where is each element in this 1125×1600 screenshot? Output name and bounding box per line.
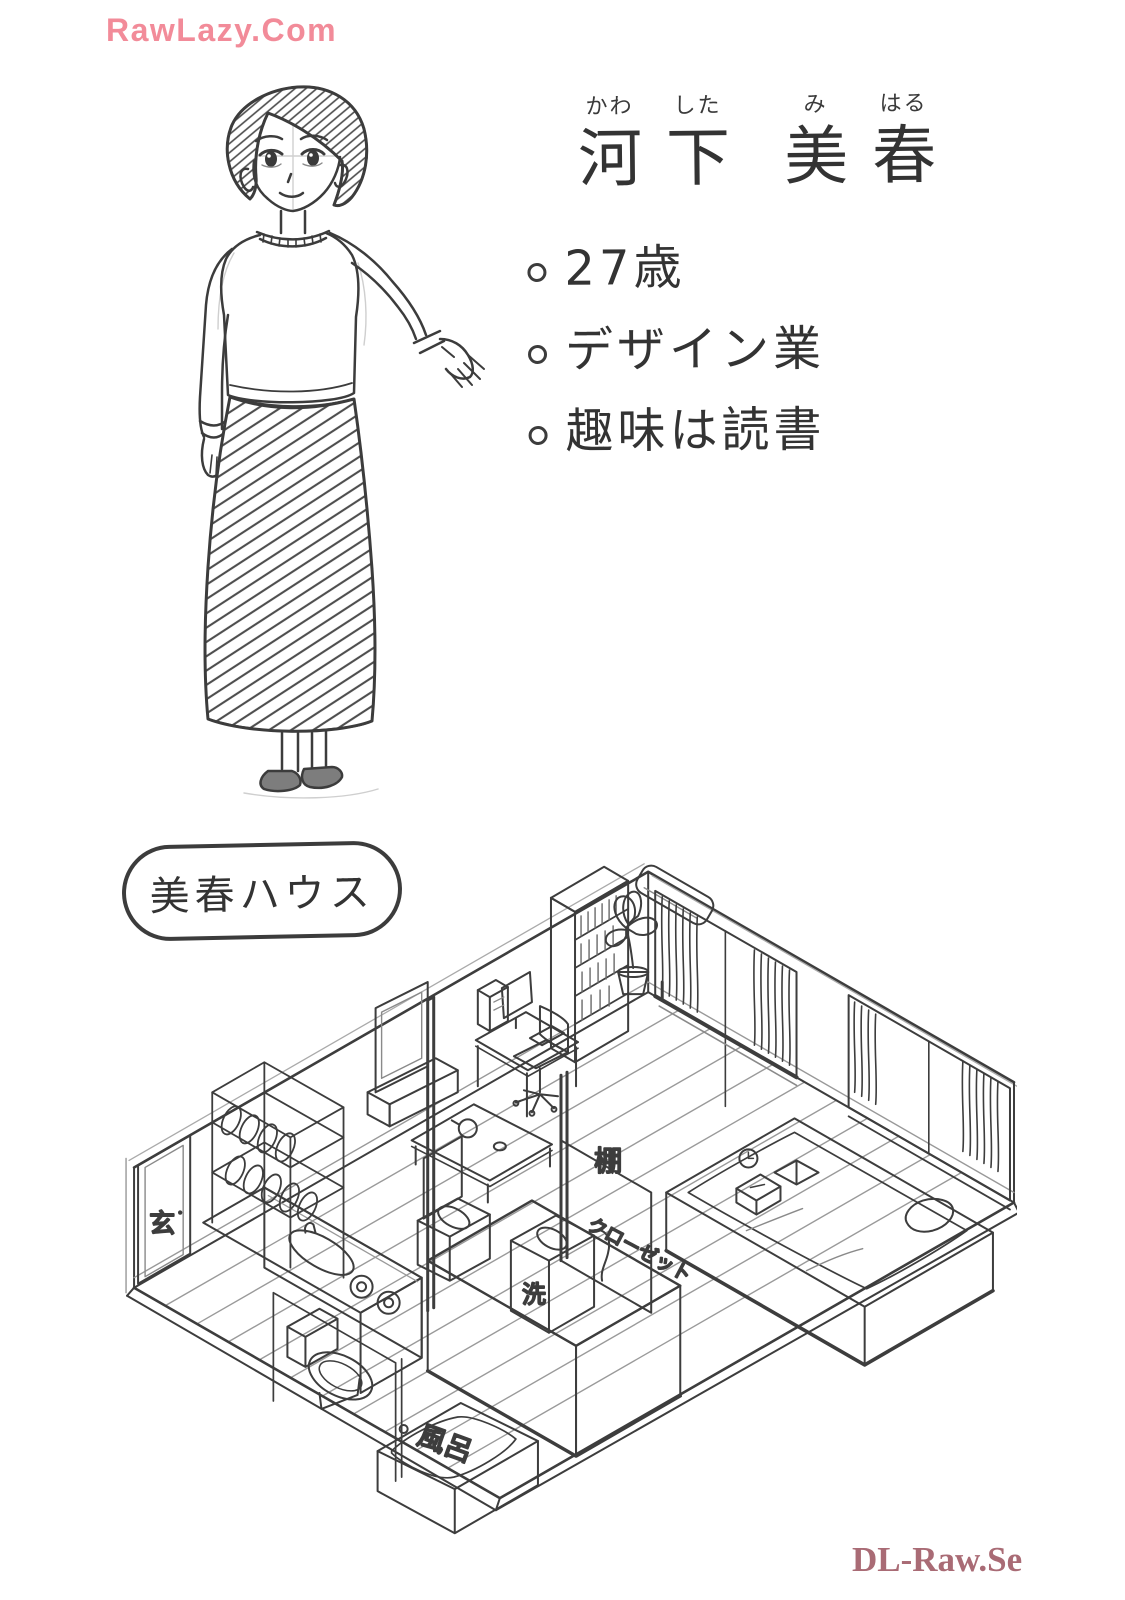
sweater-torso — [221, 233, 358, 402]
monitor — [502, 972, 532, 1018]
stove-burner — [351, 1276, 373, 1298]
left-eye — [265, 151, 277, 167]
left-shoe — [261, 771, 301, 791]
pillow — [906, 1199, 953, 1232]
manga-character-sheet-page: { "page": { "watermark_top": "RawLazy.Co… — [0, 0, 1125, 1600]
character-name: かわ 河 した 下 み 美 はる 春 — [565, 92, 948, 200]
legs — [282, 731, 326, 771]
face-outline — [254, 157, 340, 211]
hair-outline — [227, 87, 366, 206]
pc-tower — [478, 980, 508, 997]
dish-rack — [212, 1062, 343, 1277]
right-eye — [307, 150, 319, 166]
curtain-left — [854, 1002, 876, 1104]
books — [581, 896, 616, 1020]
circle-bullet-icon — [528, 345, 547, 364]
name-char: み 美 — [771, 93, 860, 198]
circle-bullet-icon — [527, 263, 546, 282]
room-sketch: 玄 — [105, 838, 1017, 1538]
furigana: した — [653, 94, 741, 119]
watermark-rawlazy: RawLazy.Com — [106, 12, 337, 49]
profile-item-age: 27歳 — [527, 239, 824, 299]
character-sketch-drawing — [140, 76, 505, 800]
skirt — [205, 397, 375, 731]
floor-planks — [165, 838, 1017, 1468]
furigana: み — [771, 93, 859, 118]
room-shell — [126, 864, 1017, 1510]
watermark-dlraw: DL-Raw.Se — [852, 1540, 1022, 1580]
profile-item-job: デザイン業 — [528, 321, 825, 381]
label-bath: 風呂 — [413, 1419, 477, 1469]
tv — [368, 982, 458, 1126]
furigana: はる — [859, 92, 947, 117]
nose — [288, 174, 291, 182]
open-book — [774, 1160, 818, 1184]
neck — [281, 211, 305, 233]
name-char: した 下 — [653, 94, 742, 199]
room-sketch-drawing: 玄 — [105, 838, 1017, 1538]
furigana: かわ — [565, 95, 653, 120]
circle-bullet-icon — [529, 426, 548, 445]
stove-burner — [378, 1292, 400, 1314]
mouth — [280, 193, 303, 197]
label-entrance: 玄 — [149, 1210, 175, 1240]
profile-item-hobby: 趣味は読書 — [528, 402, 825, 462]
profile-list: 27歳 デザイン業 趣味は読書 — [527, 239, 826, 462]
toilet — [287, 1309, 380, 1409]
curtain-right — [754, 950, 790, 1065]
desk — [476, 972, 578, 1116]
balcony-door — [655, 891, 796, 1106]
label-closet: クローゼット — [584, 1214, 695, 1287]
label-washer: 洗 — [522, 1281, 546, 1309]
character-sketch — [140, 76, 505, 800]
right-shoe — [302, 767, 342, 788]
name-char: かわ 河 — [565, 95, 654, 200]
label-shelf: 棚 — [594, 1144, 622, 1177]
name-char: はる 春 — [859, 92, 948, 197]
